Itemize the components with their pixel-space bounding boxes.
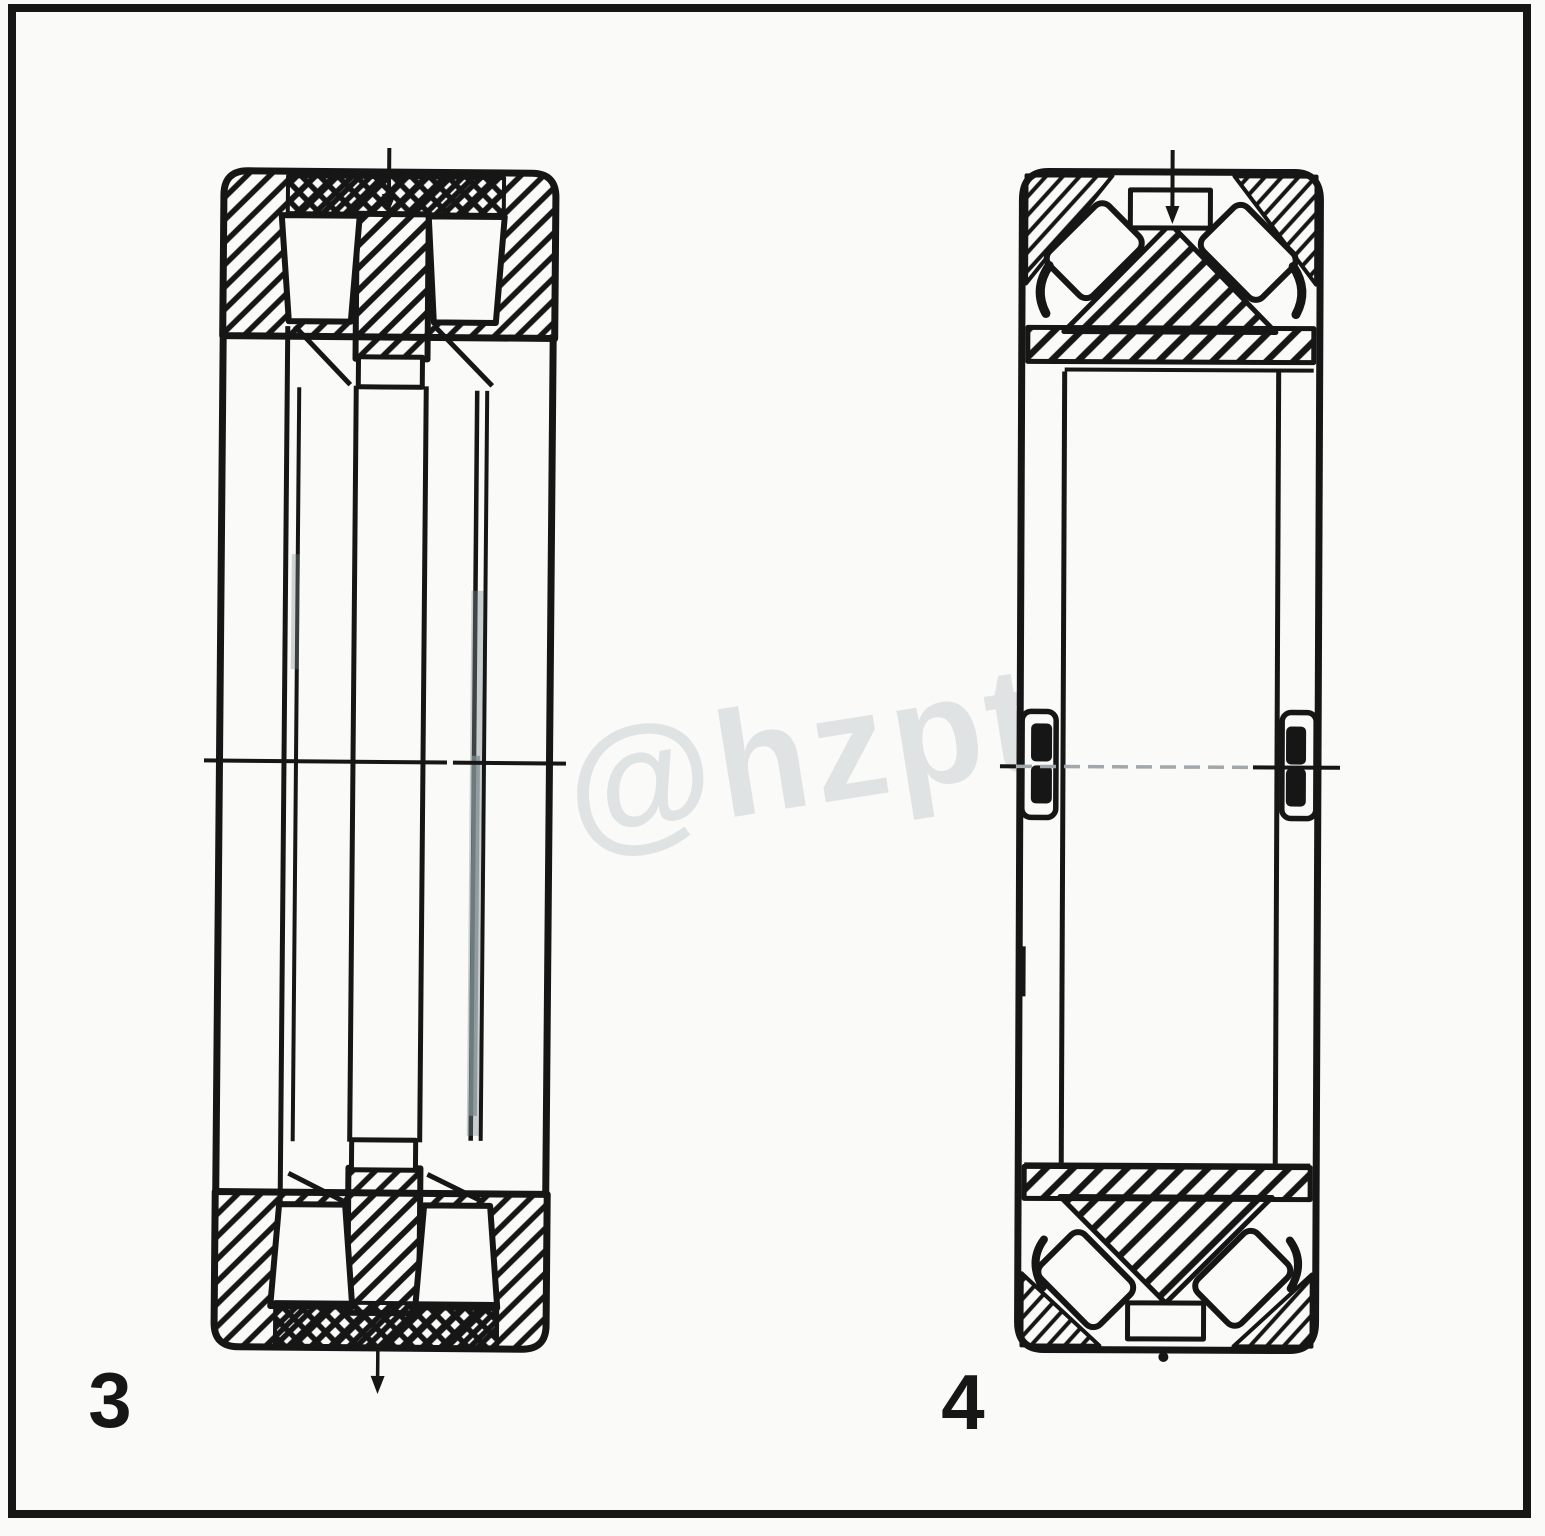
figure-3-label: 3: [88, 1356, 131, 1444]
fig3-top-step: [358, 357, 422, 388]
fig4-clip-insert: [1286, 727, 1306, 765]
figure-4-label: 4: [941, 1358, 984, 1446]
fig4-clip-insert: [1286, 769, 1306, 807]
fig3-centerline-right: [453, 763, 566, 764]
fig3-bore-line: [280, 326, 288, 1206]
fig3-centerline: [204, 760, 566, 763]
fig3-outer-wall-right: [546, 334, 554, 1197]
fig4-locating-clip-left: [1022, 711, 1056, 817]
fig4-cage-spacer-bottom: [1127, 1303, 1203, 1339]
fig3-bore-lines: [216, 326, 554, 1209]
fig3-race-texture-top: [288, 176, 504, 215]
fig4-centerline: [1000, 766, 1340, 767]
technical-drawing: @hzpt: [0, 0, 1545, 1536]
fig4-inner-edge-bottom: [1024, 1164, 1310, 1165]
fig3-race-texture-bottom: [275, 1302, 497, 1349]
watermark-text: @hzpt: [554, 633, 1054, 874]
fig3-top-center-spacer: [356, 214, 429, 360]
figure-4-bearing-section: [997, 149, 1342, 1362]
scanned-page: @hzpt: [0, 0, 1545, 1536]
fig3-bottom-center-spacer: [347, 1168, 420, 1314]
fig3-roller-pocket-top-right: [428, 216, 505, 323]
fig4-inner-edge-top: [1065, 370, 1314, 371]
fig3-bottom-step: [351, 1140, 415, 1171]
figure-3-bearing-section: [198, 146, 571, 1395]
fig3-centerline-left: [204, 760, 447, 762]
fig3-bore-line: [293, 387, 300, 1141]
arrow-down-icon: [370, 1376, 384, 1394]
fig3-outer-wall-left: [216, 332, 224, 1195]
scan-smudge: [291, 554, 300, 669]
fig3-roller-pocket-bottom-left: [270, 1204, 353, 1307]
fig3-roller-pocket-top-left: [281, 215, 360, 322]
fig3-roller-pocket-bottom-right: [415, 1205, 498, 1308]
fig4-clip-insert: [1031, 765, 1052, 803]
fig4-clip-insert: [1031, 723, 1052, 761]
fig4-center-mark-dot: [1158, 1352, 1168, 1362]
fig3-center-mark-bottom: [370, 1350, 384, 1394]
